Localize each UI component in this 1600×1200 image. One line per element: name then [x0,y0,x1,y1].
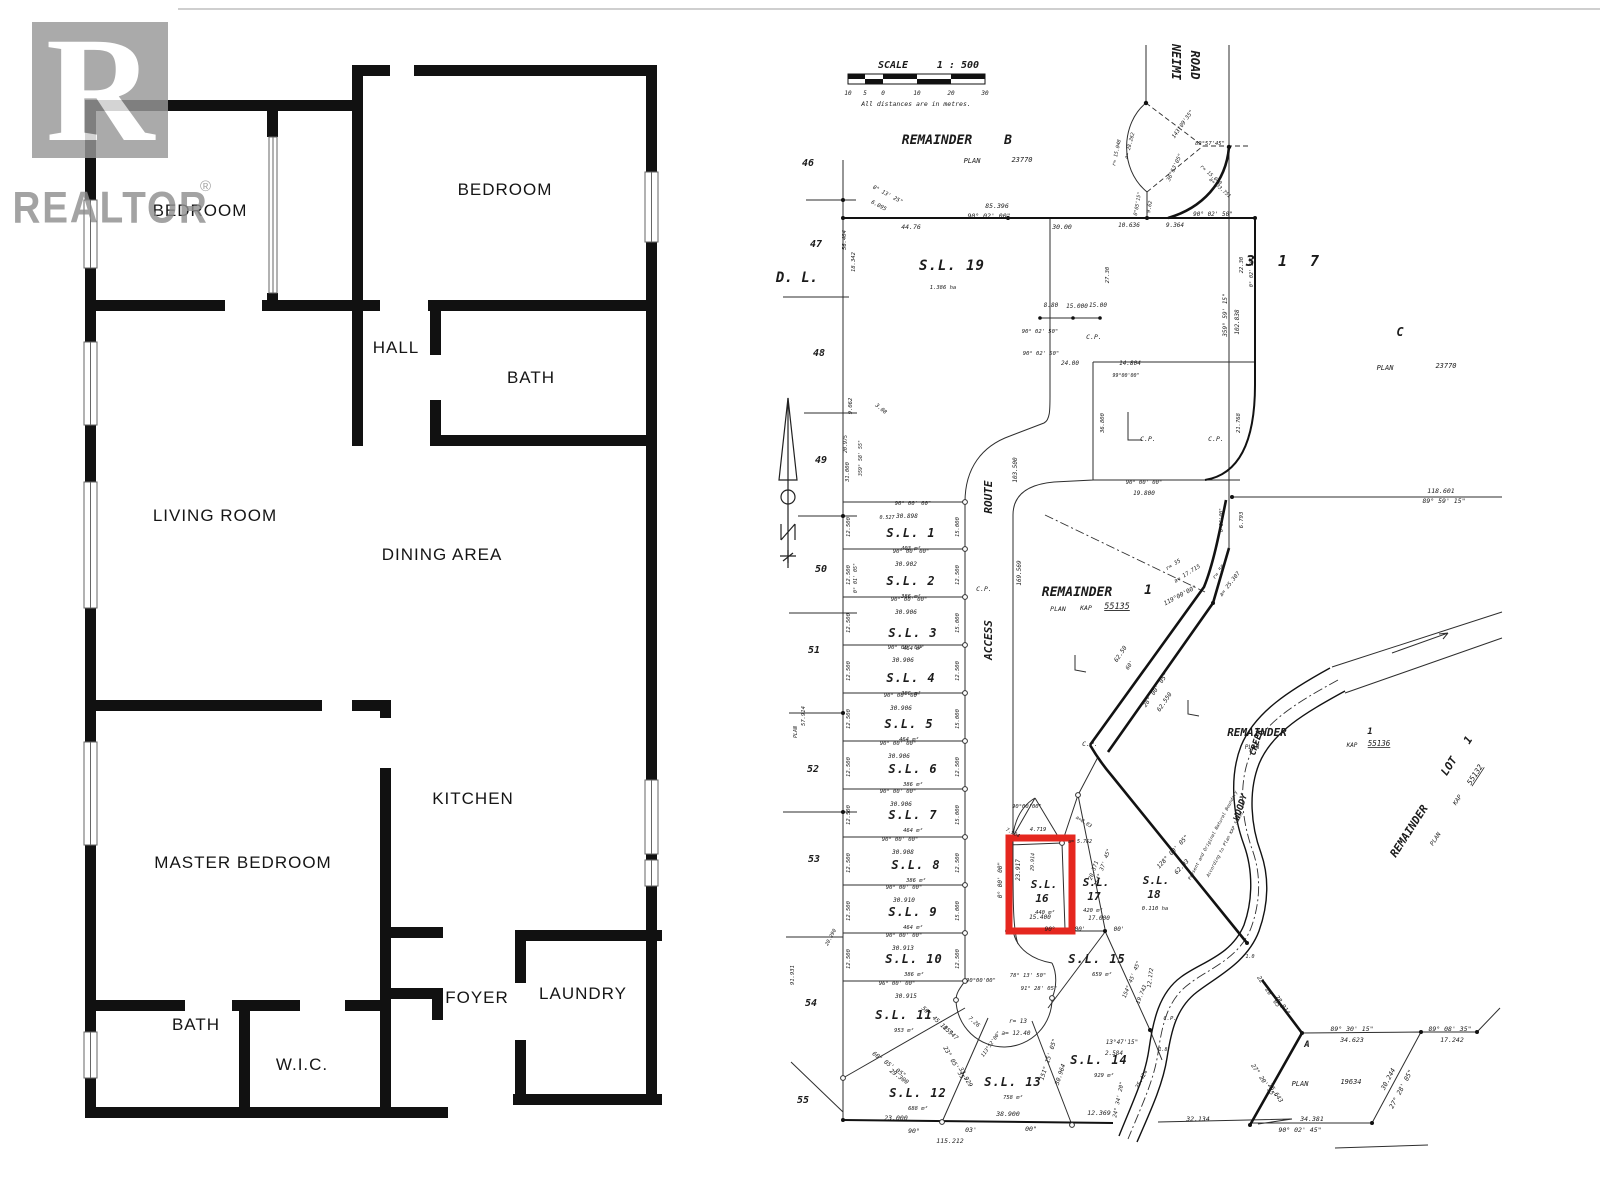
map-annotation: 90° [1045,926,1056,933]
map-annotation: 23770 [1011,156,1032,164]
map-annotation: r= 13 [1009,1018,1027,1025]
map-annotation: 00' [1114,926,1125,933]
lot-area-sl-11: 953 m² [894,1027,914,1034]
map-annotation: r= 35 [1165,558,1182,572]
wall-segment [515,930,662,941]
map-annotation: 89°57'45" [1195,141,1225,147]
map-annotation: 12.500 [955,660,961,681]
map-annotation: a= 5.762 [1068,839,1092,845]
wall-segment [391,988,443,999]
map-annotation: 23.917 [1015,859,1022,881]
map-annotation: 21.768 [1236,412,1242,433]
map-annotation: D. L. [775,270,818,286]
wall-segment [85,1000,185,1011]
realtor-brand-text: REALTOR [13,183,209,233]
map-annotation: 24° 34' 20" [1112,1081,1125,1118]
map-annotation: 51 [808,645,820,656]
map-annotation: 30.906 [889,801,912,808]
wall-segment [646,242,657,780]
realtor-logo-r-icon: R [46,10,154,170]
wall-segment [232,1000,300,1011]
map-annotation: 12.500 [846,708,852,729]
room-label-living-room: LIVING ROOM [153,506,277,525]
wall-segment [380,711,391,718]
scale-tick: 10 [844,90,852,97]
wall-segment [345,1000,391,1011]
lot-label-sl-8: S.L. 8 [891,858,940,872]
map-annotation: 0° 00' 00" [997,862,1004,898]
map-annotation: 15.000 [1066,303,1088,310]
map-annotation: ACCESS [982,620,995,661]
map-annotation: 90° 00' 00" [884,693,920,699]
map-annotation: 8.80 [1044,302,1059,309]
scale-note: All distances are in metres. [860,100,971,108]
lot-label-sl-7: S.L. 7 [888,808,937,822]
map-annotation: 15.00 [1089,302,1107,309]
room-label-bath-upper: BATH [507,368,555,387]
wall-segment [85,608,96,742]
map-annotation: 89° 30' 15" [1330,1025,1373,1033]
map-annotation: 55135 [1104,602,1130,612]
map-annotation: 49 [815,455,827,466]
map-annotation: 118.601 [1427,487,1454,495]
map-annotation: 15.400 [1029,914,1051,921]
lot-label-sl-6: S.L. 6 [888,762,937,776]
map-annotation: 30.908 [891,849,914,856]
lot-label-sl-13: S.L. 13 [984,1075,1042,1089]
map-annotation: 7.26 [967,1016,981,1030]
map-annotation: 31.000 [845,461,851,483]
map-annotation: 91° 28' 05" [1021,986,1057,992]
room-label-dining-area: DINING AREA [382,545,503,564]
map-annotation: 1 [1144,583,1152,598]
map-annotation: 90° 00' 00" [1126,480,1162,486]
map-annotation: REMAINDER [1042,585,1113,600]
map-annotation: 30.964 [1054,1063,1068,1087]
map-annotation: 169.569 [1016,560,1023,586]
map-annotation: 12.500 [955,564,961,585]
map-annotation: a= 12.40 [1002,1030,1031,1037]
map-annotation: 6.095 [870,200,887,213]
room-label-wic: W.I.C. [276,1055,328,1074]
lot-label-sl-19: S.L. 19 [919,258,985,274]
room-label-laundry: LAUNDRY [539,984,627,1003]
map-annotation: KAP [1079,604,1092,612]
map-annotation: 36°53'05" [1166,153,1184,183]
map-annotation: 12.369 [1087,1109,1111,1117]
map-annotation: 90° 00' 00" [880,741,916,747]
realtor-watermark: R REALTOR ® [32,22,212,232]
map-annotation: 90° [908,1127,920,1135]
map-annotation: 90° 00' 00" [893,549,929,555]
map-annotation: 90° 00' 00" [891,597,927,603]
map-annotation: 48 [813,348,825,359]
realtor-logo-box: R [32,22,168,158]
wall-segment [430,435,657,446]
wall-segment [85,425,96,482]
map-annotation: 30.913 [891,945,914,952]
lot-area-sl-15: 659 m² [1092,971,1112,978]
wall-segment [432,999,443,1020]
map-annotation: 15.000 [955,516,961,537]
map-annotation: 1.8 [1158,1047,1167,1053]
wall-segment [430,311,441,355]
map-annotation: 12.500 [955,948,961,969]
lot-label-sl-17: 17 [1087,890,1101,903]
map-annotation: 12.500 [955,852,961,873]
lot-label-sl-5: S.L. 5 [884,717,933,731]
map-annotation: 4.719 [1030,827,1047,833]
map-annotation: 22.30 [1239,256,1245,273]
lot-label-sl-12: S.L. 12 [889,1086,947,1100]
map-annotation: 6.793 [1239,512,1245,529]
wall-segment [391,927,443,938]
map-annotation: 55132 [1465,762,1485,786]
map-annotation: 359° 59' 15" [1222,293,1229,337]
map-annotation: 24.00 [1061,360,1079,367]
lot-label-sl-9: S.L. 9 [888,905,937,919]
map-annotation: 19634 [1340,1078,1361,1086]
map-annotation: 44.76 [901,223,921,231]
map-annotation: 62.03 [1173,858,1191,876]
wall-segment [267,111,278,137]
map-annotation: 62.550 [1156,691,1174,713]
lot-label-sl-18: S.L. [1143,874,1170,887]
map-annotation: 90° 02' 50" [1023,351,1059,357]
room-label-master-bedroom: MASTER BEDROOM [154,853,331,872]
map-annotation: 55 [797,1095,809,1106]
lot-label-sl-16: S.L. [1031,878,1058,891]
map-annotation: 00" [1025,1125,1037,1133]
map-annotation: ROAD [1188,51,1202,80]
wall-segment [267,293,278,311]
wall-segment [85,700,322,711]
map-annotation: 90° 02' 50" [1022,329,1058,335]
map-annotation: 12.500 [955,756,961,777]
lot-area-sl-13: 758 m² [1003,1094,1023,1101]
map-annotation: PLAN [793,725,799,738]
map-annotation: 23770 [1435,362,1456,370]
map-annotation: a= 28.262 [1124,132,1137,160]
map-annotations: REMAINDERBPLAN23770NEIMIROAD3 1 7CPLAN23… [775,43,1485,1145]
map-annotation: 34.623 [1339,1036,1364,1044]
map-annotation: 12.172 [1147,967,1156,988]
map-annotation: KAP [1451,793,1464,807]
map-annotation: 12.500 [846,804,852,825]
map-annotation: 00' [1075,926,1086,933]
map-annotation: 12.500 [846,756,852,777]
map-annotation: 32.134 [1185,1115,1210,1123]
map-annotation: 60' [1125,660,1136,672]
map-annotation: 15.000 [955,708,961,729]
survey-map: SCALE 1 : 500 All distances are in metre… [700,0,1600,1200]
map-annotation: 10.636 [1118,222,1140,229]
map-annotation: KAP [1346,742,1358,749]
wall-segment [428,300,657,311]
map-annotation: 12.500 [846,948,852,969]
map-annotation: 12.500 [846,900,852,921]
map-annotation: 90° 00' 00" [882,837,918,843]
map-annotation: PLAN [1377,364,1395,372]
map-annotation: 151° 15' 05" [1039,1038,1059,1081]
map-annotation: 53 [808,854,820,865]
scale-bar [848,74,985,84]
lot-labels: S.L. 191.386 haS.L. 1403 m²S.L. 2386 m²S… [875,258,1169,1112]
map-annotation: 9.62 [1146,200,1154,213]
map-annotation: 30.906 [887,753,910,760]
map-annotation: 90° 00' 00" [886,885,922,891]
map-annotation: C.P. [1140,435,1156,443]
map-annotation: 0°05'15" [1133,191,1143,216]
map-annotation: 23.000 [884,1114,908,1122]
map-annotation: 30.898 [895,513,918,520]
map-annotation: 30.910 [892,897,915,904]
map-annotation: 90° 00' 00" [895,501,931,507]
map-annotation: 90° 02' 45" [1278,1126,1321,1134]
map-annotation: 15.000 [955,612,961,633]
map-annotation: 57.914 [801,706,807,726]
map-annotation: 62.50 [1113,644,1129,663]
map-annotation: 90° 00' 00" [888,645,924,651]
map-annotation: 17.000 [1088,915,1110,922]
map-annotation: REMAINDER [902,133,973,148]
map-annotation: 15.000 [955,900,961,921]
map-annotation: 30.902 [894,561,917,568]
room-label-hall: HALL [373,338,420,357]
map-annotation: 30.00 [1051,223,1072,231]
map-annotation: 89° 59' 15" [1422,497,1465,505]
map-annotation: 18.342 [851,251,857,272]
map-annotation: 54 [805,998,817,1009]
map-annotation: 90°00'00" [1012,804,1042,810]
map-annotation: 30.906 [894,609,917,616]
map-annotation: 3.08 [873,402,888,416]
map-annotation: 27.30 [1105,266,1111,283]
map-annotation: 52 [807,764,819,775]
map-annotation: 0° 02' 50" [1249,257,1255,287]
lot-label-sl-10: S.L. 10 [885,952,943,966]
map-annotation: 10.947 [939,1022,960,1042]
map-annotation: 12.500 [846,564,852,585]
map-annotation: 25.424 [1135,1069,1150,1089]
registered-trademark-icon: ® [200,178,211,195]
map-annotation: 19.800 [1133,490,1155,497]
wall-segment [85,1107,448,1118]
lot-area-sl-12: 688 m² [908,1105,928,1112]
map-annotation: 0°56'40" [1219,508,1225,532]
map-annotation: 14.804 [1119,360,1141,367]
map-annotation: C.P. [1082,740,1098,748]
map-annotation: a= 17.715 [1173,564,1201,585]
scale-tick: 10 [913,90,921,97]
map-annotation: 13°47'15" [1106,1039,1139,1046]
map-annotation: C.P. [1163,1016,1176,1022]
map-annotation: 1 [1367,727,1372,737]
lot-area-sl-17: 420 m² [1083,907,1103,914]
lot-label-sl-16: 16 [1035,892,1049,905]
map-annotation: A [1303,1040,1309,1050]
scale-ratio: 1 : 500 [937,60,979,71]
lot-area-sl-7: 464 m² [903,827,923,834]
lot-label-sl-4: S.L. 4 [886,671,935,685]
map-annotation: 15.000 [955,804,961,825]
wall-segment [352,65,363,446]
lot-area-sl-9: 464 m² [903,924,923,931]
north-arrow-icon [779,398,797,568]
wall-segment [646,65,657,172]
map-annotation: 12.500 [846,516,852,537]
map-annotation: 46 [802,158,814,169]
map-annotation: 115.212 [936,1137,963,1145]
lot-label-sl-1: S.L. 1 [886,526,935,540]
map-annotation: 9.364 [1166,222,1184,229]
map-annotation: 38.900 [995,1110,1020,1118]
map-annotation: 19.743 [1136,984,1149,1005]
map-annotation: 36.800 [1100,412,1106,434]
wall-segment [85,300,225,311]
wall-segment [515,941,526,983]
wall-segment [352,65,390,76]
map-annotation: 03' [965,1126,977,1134]
lot-area-sl-18: 0.110 ha [1142,906,1169,912]
map-annotation: 9.062 [848,397,854,414]
map-annotation: a=8.83 [1074,815,1092,830]
wall-segment [646,886,657,1105]
wall-segment [515,1040,526,1094]
map-annotation: PLAN [1292,1080,1310,1088]
wall-segment [380,768,391,1118]
map-annotation: 34.381 [1299,1115,1324,1123]
map-annotation: 29.914 [1030,853,1037,871]
scale-tick: 0 [881,90,885,97]
wall-segment [414,65,657,76]
scale-tick: 5 [863,90,867,97]
map-annotation: 50 [815,564,827,575]
lot-label-sl-18: 18 [1147,888,1161,901]
map-annotation: 30.906 [889,705,912,712]
map-annotation: REMAINDER [1387,802,1431,859]
map-annotation: 17.242 [1440,1036,1464,1044]
map-annotation: NEIMI [1169,43,1183,81]
map-annotation: 90° 00' 00" [886,933,922,939]
scale-tick: 20 [947,90,955,97]
real-estate-listing-image: BEDROOMBEDROOMHALLBATHLIVING ROOMDINING … [0,0,1600,1200]
map-annotation: 90° 02' 50" [1193,211,1233,218]
map-annotation: PLAN [1050,605,1066,613]
room-label-bedroom-right: BEDROOM [458,180,553,199]
map-annotation: 56.404 [842,230,848,250]
map-annotation: PLAN [1429,831,1443,847]
lot-label-sl-2: S.L. 2 [886,574,935,588]
map-annotation: 20.290 [824,928,838,947]
lot-label-sl-15: S.L. 15 [1068,952,1126,966]
map-annotation: 30.915 [894,993,917,1000]
map-annotation: PLAN [964,157,982,165]
map-annotation: C.P. [1086,333,1102,341]
map-annotation: 113°52'00" [980,1030,1002,1058]
map-annotation: 103.500 [1012,457,1019,483]
wall-segment [363,300,380,311]
map-annotation: 0.527 [879,515,894,521]
lot-area-sl-14: 929 m² [1094,1072,1114,1079]
map-annotation: 12.500 [846,660,852,681]
map-annotation: C.P. [1208,435,1224,443]
room-label-bath-lower: BATH [172,1015,220,1034]
map-annotation: 3 1 7 [1245,252,1326,270]
lot-area-sl-6: 386 m² [902,781,923,788]
survey-monument-dots [841,101,1479,1127]
lot-area-sl-10: 386 m² [903,971,924,978]
room-label-foyer: FOYER [445,988,509,1007]
lot-area-sl-19: 1.386 ha [930,285,957,291]
lot-label-sl-3: S.L. 3 [888,626,937,640]
map-annotation: 90°00'00" [966,978,996,984]
map-annotation: 78° 13' 50" [1010,973,1046,979]
map-annotation: 55136 [1368,739,1391,748]
map-annotation: B [1003,133,1012,148]
map-annotation: LOT [1438,754,1460,778]
map-annotation: C.P. [976,585,992,593]
map-annotation: 90° 00' 00" [880,789,916,795]
lot-area-sl-8: 386 m² [905,877,926,884]
map-annotation: 99°00'00" [1112,373,1139,379]
map-annotation: 47 [810,239,822,250]
map-annotation: 12.500 [846,852,852,873]
scale-ticks: 1050102030 [844,90,989,97]
wall-segment [646,854,657,860]
wall-segment [239,1011,250,1118]
map-annotation: C [1396,325,1404,339]
wall-segment [513,1094,662,1105]
map-annotation: r= 15.048 [1111,139,1123,167]
map-annotation: 359° 58' 55" [858,440,864,477]
map-annotation: 96° 00' 00" [879,981,915,987]
map-annotation: 12.500 [846,612,852,633]
room-label-kitchen: KITCHEN [432,789,514,808]
map-annotation: 1 [1461,734,1476,747]
map-annotation: 1.0 [1245,954,1254,960]
map-annotation: 89° 08' 35" [1428,1025,1471,1033]
scale-tick: 30 [980,90,989,97]
map-annotation: ROUTE [982,480,995,513]
map-annotation: 102.838 [1234,309,1241,335]
map-annotation: 20.975 [843,435,849,453]
map-annotation: 91.931 [790,965,796,985]
map-annotation: 0° 01' 05" [853,563,859,593]
scale-label: SCALE [878,60,909,71]
map-annotation: 30.244 [1379,1067,1398,1092]
map-annotation: 90° 02' 00" [967,212,1010,220]
map-annotation: 85.396 [985,202,1009,210]
map-annotation: 2.584 [1105,1050,1123,1057]
map-annotation: 30.906 [891,657,914,664]
wall-segment [352,700,391,711]
